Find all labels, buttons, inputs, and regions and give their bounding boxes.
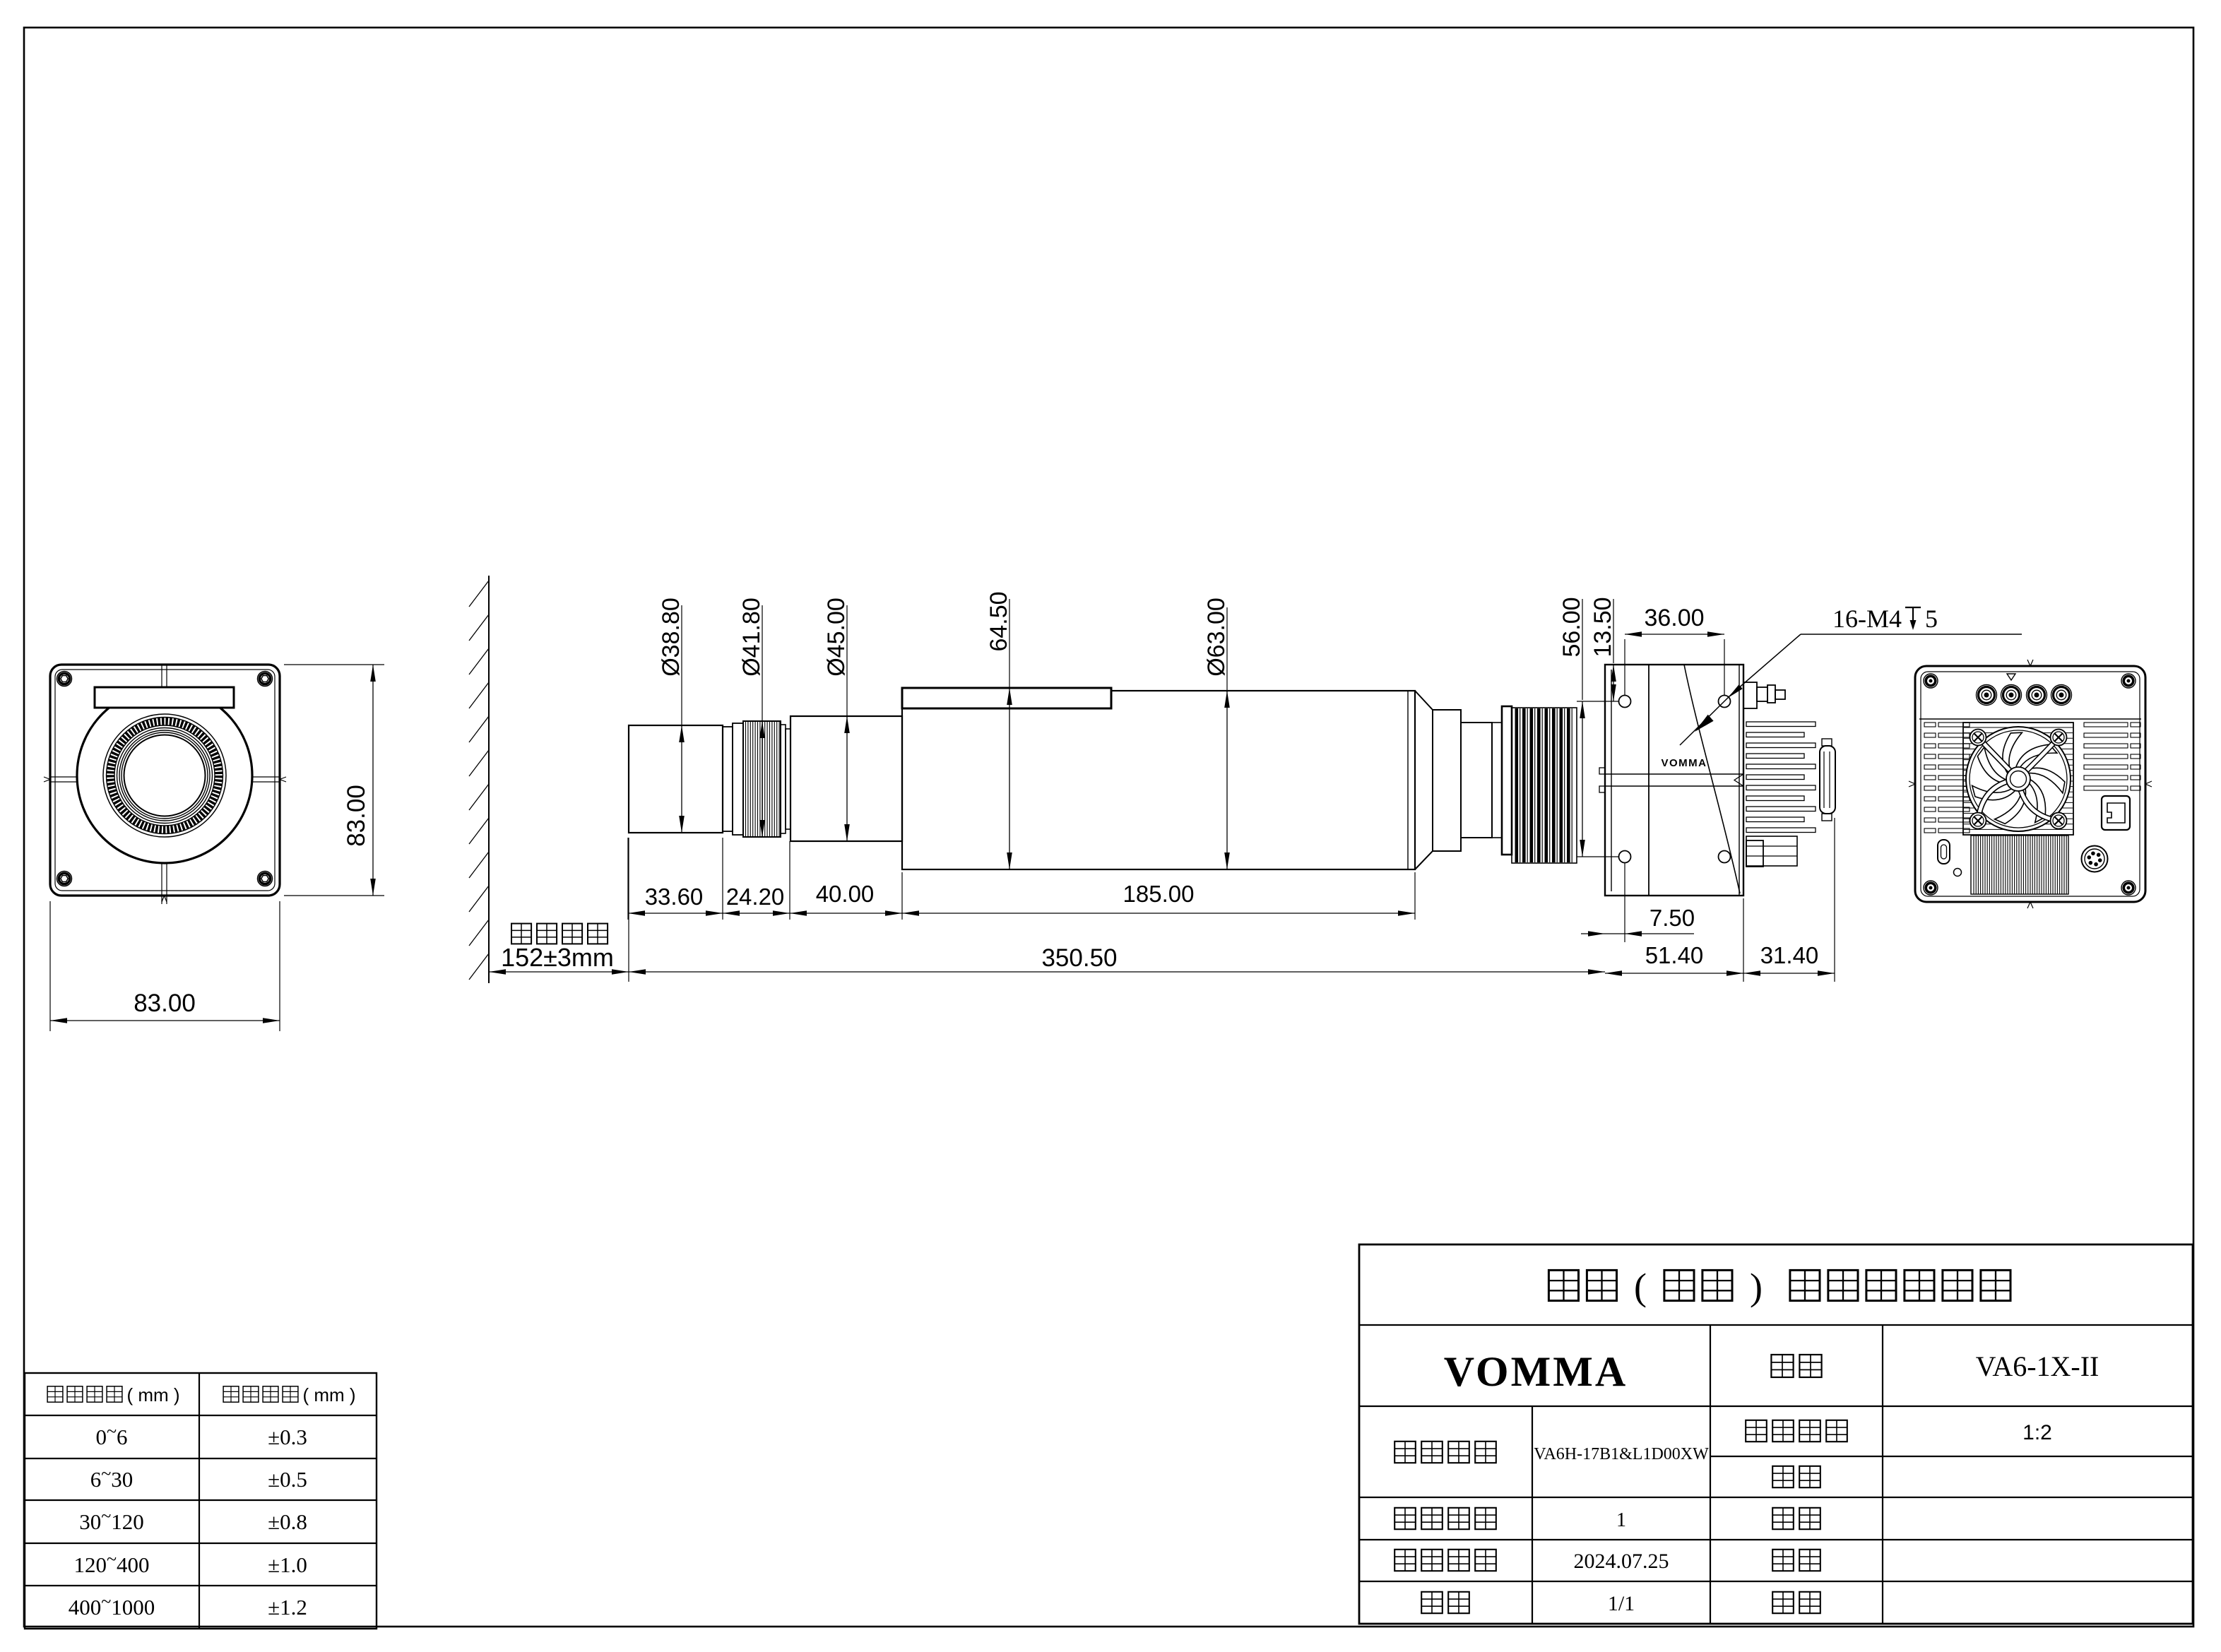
svg-text:( mm ): ( mm ) (302, 1384, 355, 1406)
svg-text:Ø38.80: Ø38.80 (658, 598, 685, 677)
svg-text:2024.07.25: 2024.07.25 (1574, 1550, 1669, 1573)
svg-text:( mm ): ( mm ) (126, 1384, 179, 1406)
svg-text:185.00: 185.00 (1123, 881, 1195, 907)
svg-text:VA6H-17B1&L1D00XW: VA6H-17B1&L1D00XW (1534, 1445, 1709, 1463)
svg-text:±1.2: ±1.2 (268, 1595, 307, 1620)
svg-text:VOMMA: VOMMA (1662, 757, 1707, 769)
svg-text:1/1: 1/1 (1608, 1592, 1635, 1615)
svg-text:VOMMA: VOMMA (1444, 1348, 1628, 1395)
svg-text:±1.0: ±1.0 (268, 1552, 307, 1577)
svg-text:1:2: 1:2 (2022, 1421, 2052, 1444)
svg-text:±0.8: ±0.8 (268, 1509, 307, 1534)
svg-text:400~1000: 400~1000 (69, 1591, 155, 1620)
svg-text:1: 1 (1616, 1509, 1626, 1531)
svg-text:Ø41.80: Ø41.80 (738, 598, 765, 677)
svg-text:83.00: 83.00 (134, 990, 196, 1017)
svg-text:83.00: 83.00 (343, 785, 370, 847)
svg-text:16-M4: 16-M4 (1832, 605, 1902, 633)
svg-text:152±3mm: 152±3mm (501, 943, 614, 972)
svg-text:33.60: 33.60 (645, 884, 704, 910)
svg-text:VA6-1X-II: VA6-1X-II (1976, 1350, 2099, 1382)
svg-text:13.50: 13.50 (1589, 597, 1616, 657)
svg-text:Ø45.00: Ø45.00 (823, 598, 850, 677)
svg-text:): ) (1750, 1266, 1763, 1308)
svg-text:6~30: 6~30 (90, 1463, 134, 1492)
svg-text:40.00: 40.00 (816, 881, 875, 907)
svg-text:56.00: 56.00 (1558, 597, 1585, 657)
svg-text:30~120: 30~120 (79, 1506, 144, 1534)
svg-text:5: 5 (1925, 605, 1938, 633)
svg-text:±0.5: ±0.5 (268, 1467, 307, 1492)
svg-text:±0.3: ±0.3 (268, 1425, 307, 1449)
svg-text:64.50: 64.50 (985, 591, 1012, 651)
svg-text:31.40: 31.40 (1760, 942, 1819, 968)
svg-text:(: ( (1634, 1266, 1647, 1308)
svg-text:51.40: 51.40 (1645, 942, 1704, 968)
svg-text:350.50: 350.50 (1041, 944, 1117, 972)
svg-text:36.00: 36.00 (1644, 605, 1704, 631)
svg-text:Ø63.00: Ø63.00 (1203, 598, 1230, 677)
svg-text:24.20: 24.20 (726, 884, 785, 910)
svg-text:7.50: 7.50 (1650, 905, 1695, 931)
